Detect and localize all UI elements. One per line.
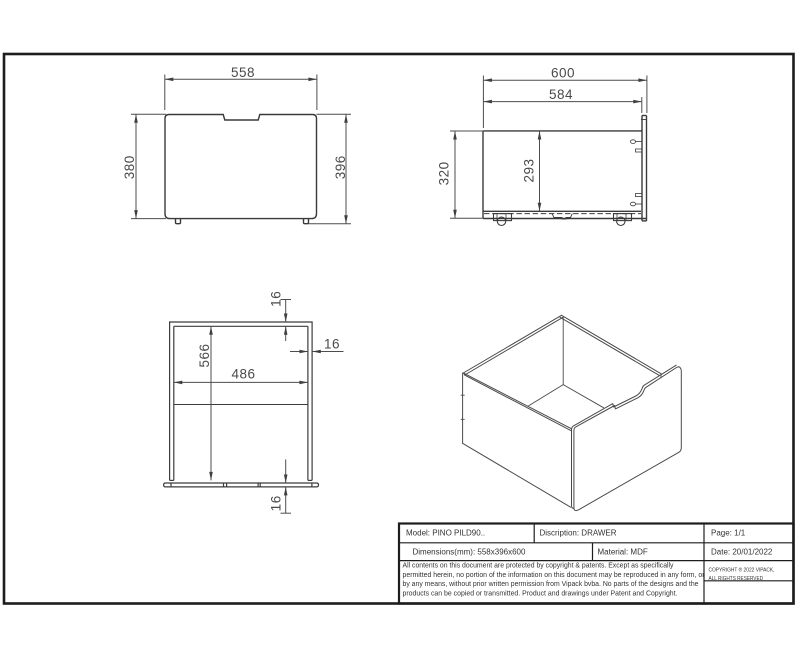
svg-text:380: 380 [122,155,137,179]
svg-text:by any means, without prior wr: by any means, without prior written perm… [403,581,699,588]
svg-text:Page: 1/1: Page: 1/1 [711,529,746,538]
svg-text:All contents on this document: All contents on this document are protec… [403,563,674,570]
svg-text:Date: 20/01/2022: Date: 20/01/2022 [711,548,773,557]
svg-text:558: 558 [231,65,255,80]
svg-text:Model: PINO PILD90..: Model: PINO PILD90.. [406,529,485,538]
svg-text:Discription: DRAWER: Discription: DRAWER [540,529,617,538]
svg-text:293: 293 [522,158,537,182]
svg-text:16: 16 [269,495,284,511]
svg-text:ALL RIGHTS RESERVED: ALL RIGHTS RESERVED [709,576,764,582]
svg-text:584: 584 [549,87,573,102]
svg-text:396: 396 [333,155,348,179]
svg-text:16: 16 [269,291,284,307]
svg-text:Material: MDF: Material: MDF [598,548,648,557]
svg-text:486: 486 [231,366,255,381]
svg-text:600: 600 [551,66,575,81]
svg-text:Dimensions(mm): 558x396x600: Dimensions(mm): 558x396x600 [413,548,526,557]
svg-text:320: 320 [437,161,452,185]
svg-text:COPYRIGHT ® 2022 VIPACK,: COPYRIGHT ® 2022 VIPACK, [709,567,775,574]
svg-text:566: 566 [197,343,212,367]
svg-text:products can be copied or tran: products can be copied or transmitted. P… [403,590,678,597]
svg-text:permitted herein, no portion o: permitted herein, no portion of the info… [403,572,706,579]
svg-text:16: 16 [324,337,340,352]
